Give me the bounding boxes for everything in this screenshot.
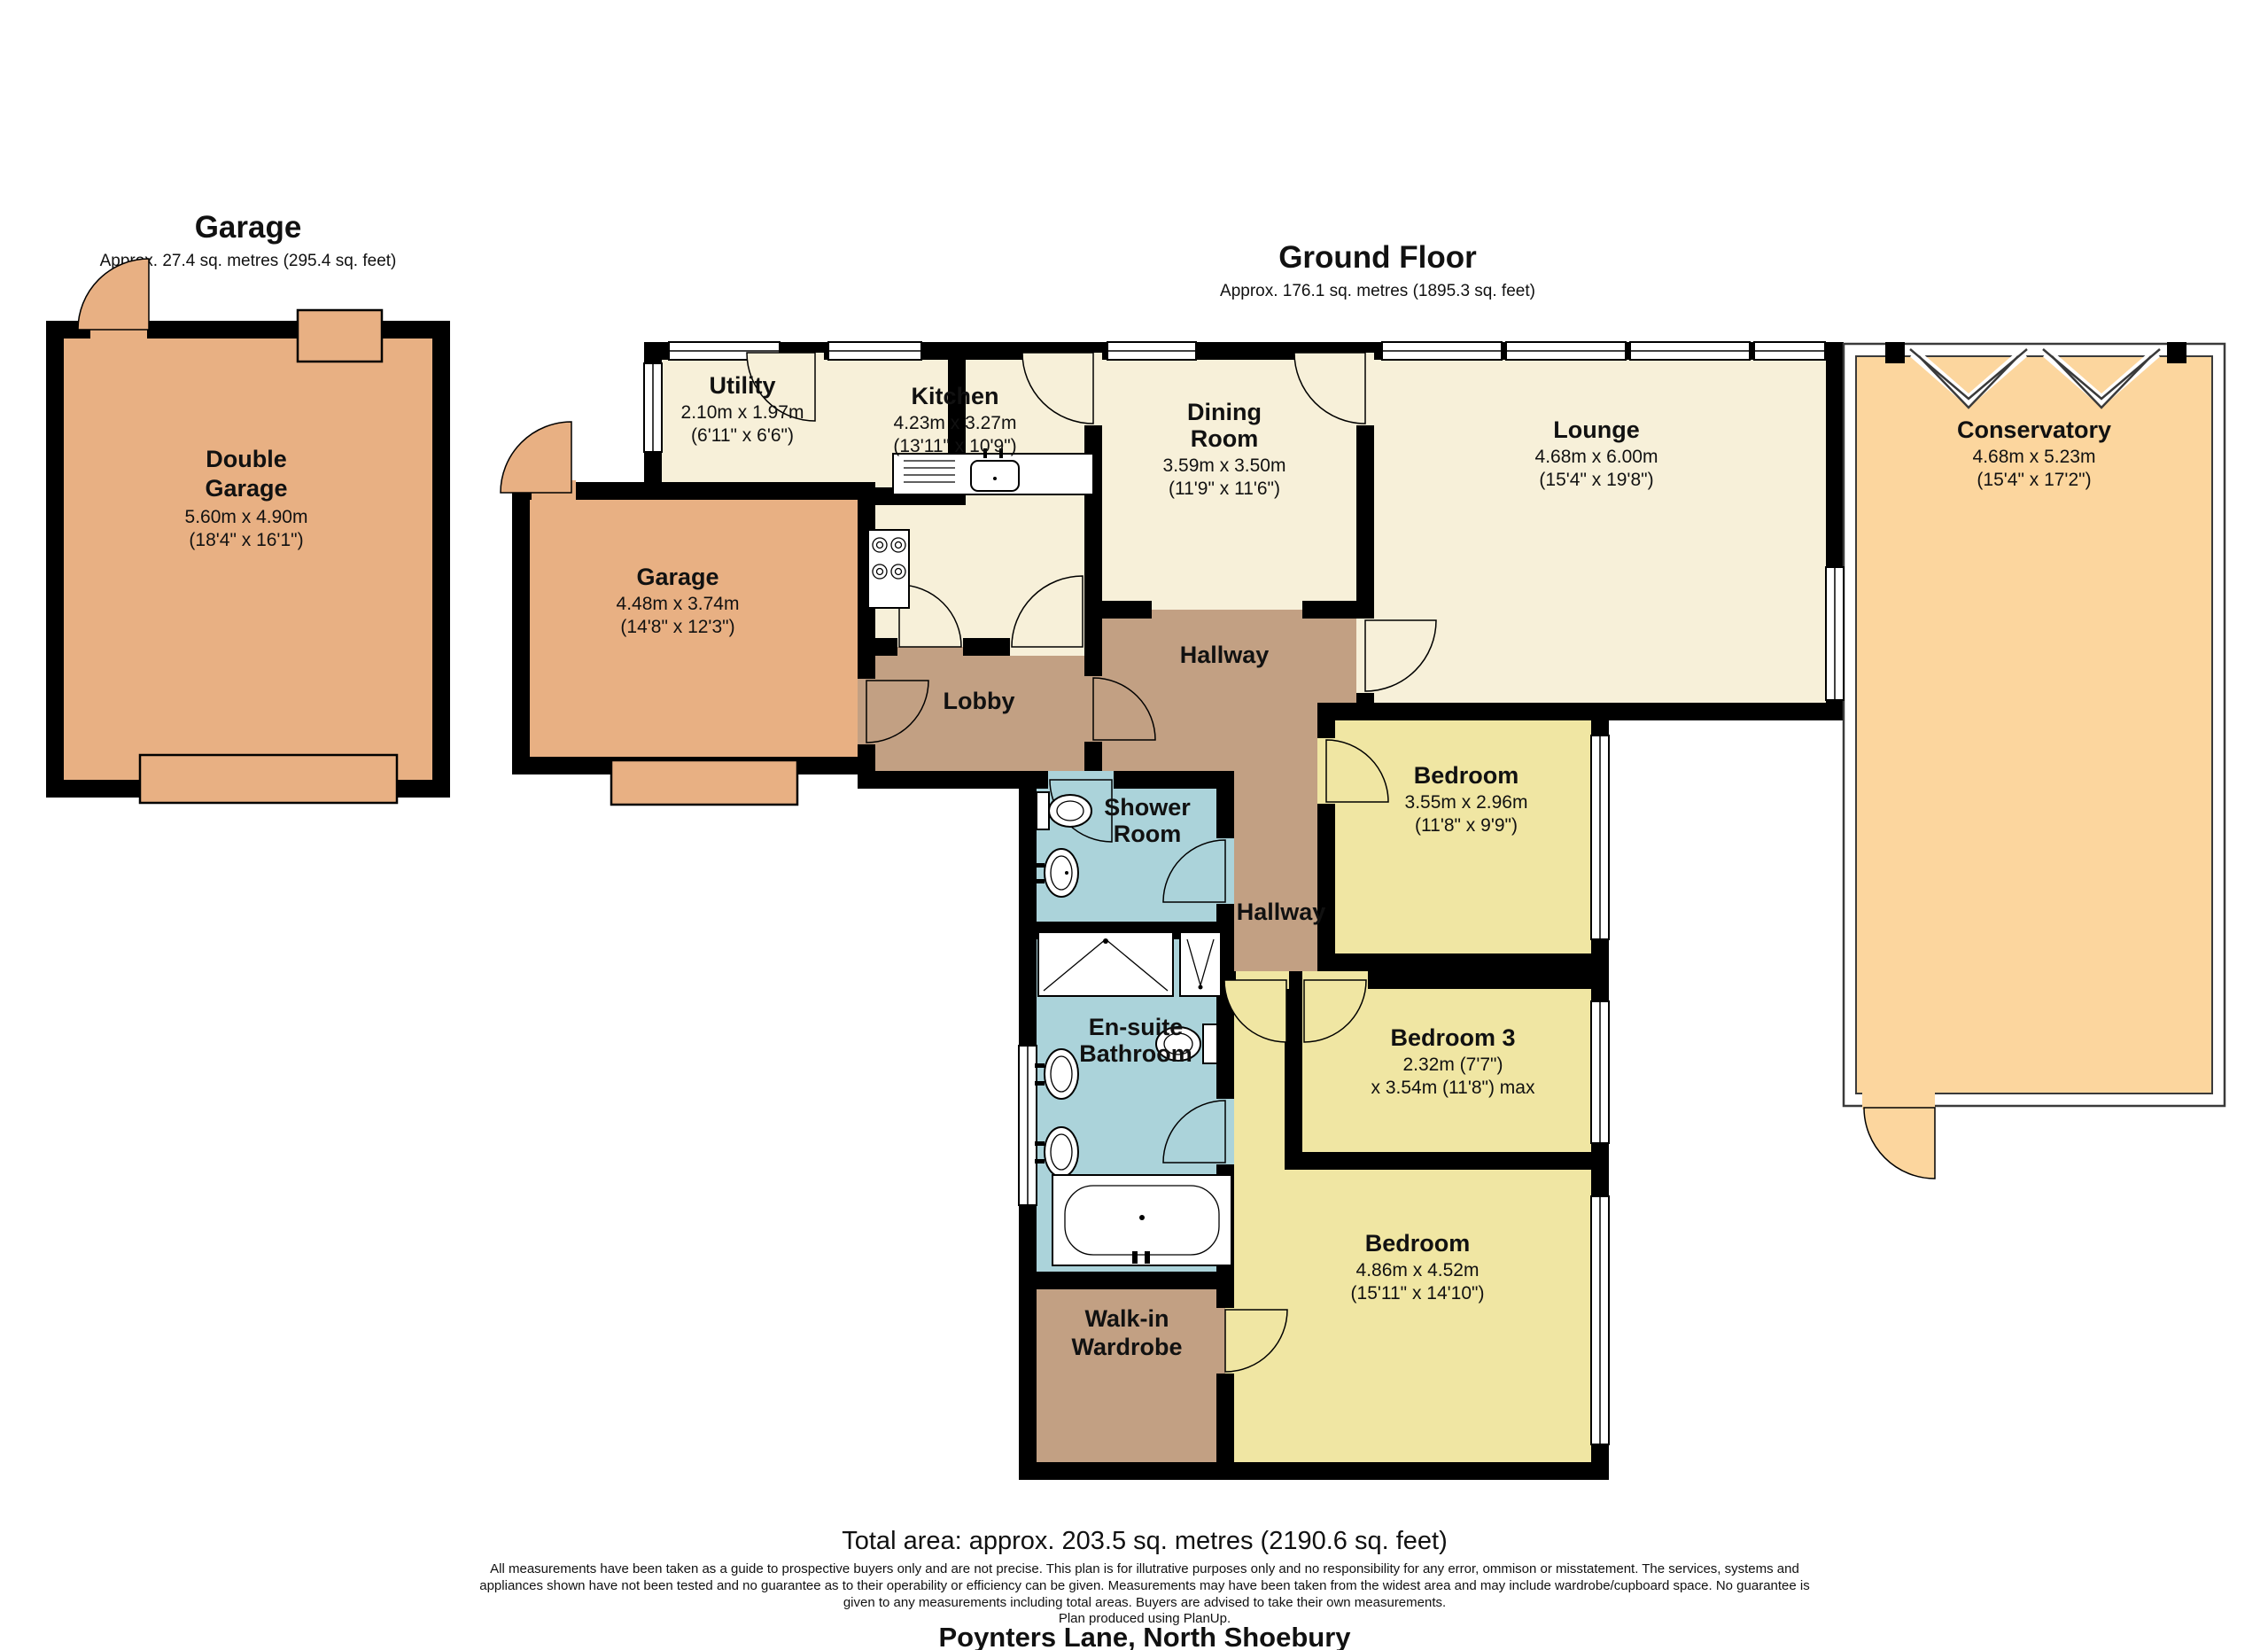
disclaimer-line3: given to any measurements including tota… <box>843 1595 1446 1610</box>
room-bedroom2-dims-ft: (15'11" x 14'10") <box>1351 1283 1485 1304</box>
bath-icon <box>1052 1175 1231 1265</box>
room-lobby-label: Lobby <box>944 688 1015 714</box>
room-bedroom1-dims-ft: (11'8" x 9'9") <box>1415 815 1518 836</box>
opening <box>1152 599 1302 610</box>
floor-plan-svg: Garage Approx. 27.4 sq. metres (295.4 sq… <box>0 0 2268 1650</box>
room-ensuite-label: En-suite <box>1089 1014 1184 1040</box>
room-bedroom3-dims-m: 2.32m (7'7") <box>1402 1055 1503 1075</box>
room-wardrobe-label: Walk-in <box>1084 1305 1169 1332</box>
room-shower-label: Shower <box>1104 794 1191 821</box>
room-bedroom3-label: Bedroom 3 <box>1390 1024 1515 1051</box>
kitchen-hob-icon <box>868 530 909 608</box>
room-bedroom1-label: Bedroom <box>1414 762 1519 789</box>
wall-segment <box>1885 342 1905 363</box>
room-lounge-dims-m: 4.68m x 6.00m <box>1535 447 1658 467</box>
room-double-garage-label: Double <box>206 446 287 472</box>
ground-floor-title: Ground Floor <box>1278 240 1477 275</box>
room-dining-label: Dining <box>1187 399 1262 425</box>
room-double-garage-dims-ft: (18'4" x 16'1") <box>189 530 303 550</box>
room-kitchen-label: Kitchen <box>911 383 998 409</box>
room-lounge-floor <box>1365 351 1835 712</box>
double-garage-door-arc <box>78 259 149 330</box>
room-dining-dims-ft: (11'9" x 11'6") <box>1169 479 1280 499</box>
room-utility-label: Utility <box>709 372 775 399</box>
room-utility-dims-m: 2.10m x 1.97m <box>681 402 804 423</box>
room-double-garage-dims-m: 5.60m x 4.90m <box>185 507 308 527</box>
room-bedroom3-dims-ft: x 3.54m (11'8") max <box>1371 1078 1535 1098</box>
room-kitchen-dims-ft: (13'11" x 10'9") <box>893 436 1016 456</box>
room-conservatory-label: Conservatory <box>1957 416 2111 443</box>
room-conservatory-dims-ft: (15'4" x 17'2") <box>1977 470 2091 490</box>
room-hallway-lower-label: Hallway <box>1237 899 1326 925</box>
shower-tray-icon <box>1180 932 1221 996</box>
room-bedroom2-dims-m: 4.86m x 4.52m <box>1356 1260 1480 1280</box>
room-hallway-label: Hallway <box>1180 642 1270 668</box>
room-kitchen-dims-m: 4.23m x 3.27m <box>894 413 1017 433</box>
garage-section-title: Garage <box>195 210 302 245</box>
room-dining-label2: Room <box>1191 425 1259 452</box>
toilet-icon <box>1037 792 1091 829</box>
room-dining-dims-m: 3.59m x 3.50m <box>1163 455 1286 476</box>
total-area-text: Total area: approx. 203.5 sq. metres (21… <box>842 1527 1448 1555</box>
room-bedroom1-dims-m: 3.55m x 2.96m <box>1405 792 1528 813</box>
room-double-garage-floor <box>55 330 441 789</box>
garage-door-arc <box>501 422 571 493</box>
wall-segment <box>2167 342 2186 363</box>
door-gap <box>1862 1088 1935 1109</box>
wardrobe-unit-icon <box>1038 932 1173 996</box>
conservatory-door-arc <box>1864 1108 1935 1179</box>
room-double-garage-label2: Garage <box>205 475 287 502</box>
room-garage-dims-m: 4.48m x 3.74m <box>617 594 740 614</box>
room-bedroom1-floor <box>1326 712 1600 962</box>
double-garage-threshold <box>140 755 397 803</box>
ground-floor-area: Approx. 176.1 sq. metres (1895.3 sq. fee… <box>1220 282 1535 300</box>
disclaimer-line1: All measurements have been taken as a gu… <box>490 1561 1799 1576</box>
room-garage-label: Garage <box>636 564 718 590</box>
garage-threshold <box>611 760 797 805</box>
room-ensuite-label2: Bathroom <box>1079 1040 1192 1067</box>
opening <box>1152 610 1302 620</box>
room-garage-dims-ft: (14'8" x 12'3") <box>620 617 734 637</box>
room-lounge-label: Lounge <box>1553 416 1639 443</box>
disclaimer-line2: appliances shown have not been tested an… <box>479 1578 1809 1593</box>
double-garage-buttress <box>298 310 382 362</box>
room-wardrobe-label2: Wardrobe <box>1071 1334 1182 1360</box>
room-bedroom2-label: Bedroom <box>1365 1230 1471 1257</box>
room-lounge-dims-ft: (15'4" x 19'8") <box>1539 470 1653 490</box>
room-conservatory-dims-m: 4.68m x 5.23m <box>1973 447 2096 467</box>
room-utility-dims-ft: (6'11" x 6'6") <box>691 425 794 446</box>
floor-plan-page: Garage Approx. 27.4 sq. metres (295.4 sq… <box>0 0 2268 1650</box>
room-shower-label2: Room <box>1114 821 1182 847</box>
property-address: Poynters Lane, North Shoebury <box>938 1622 1351 1650</box>
